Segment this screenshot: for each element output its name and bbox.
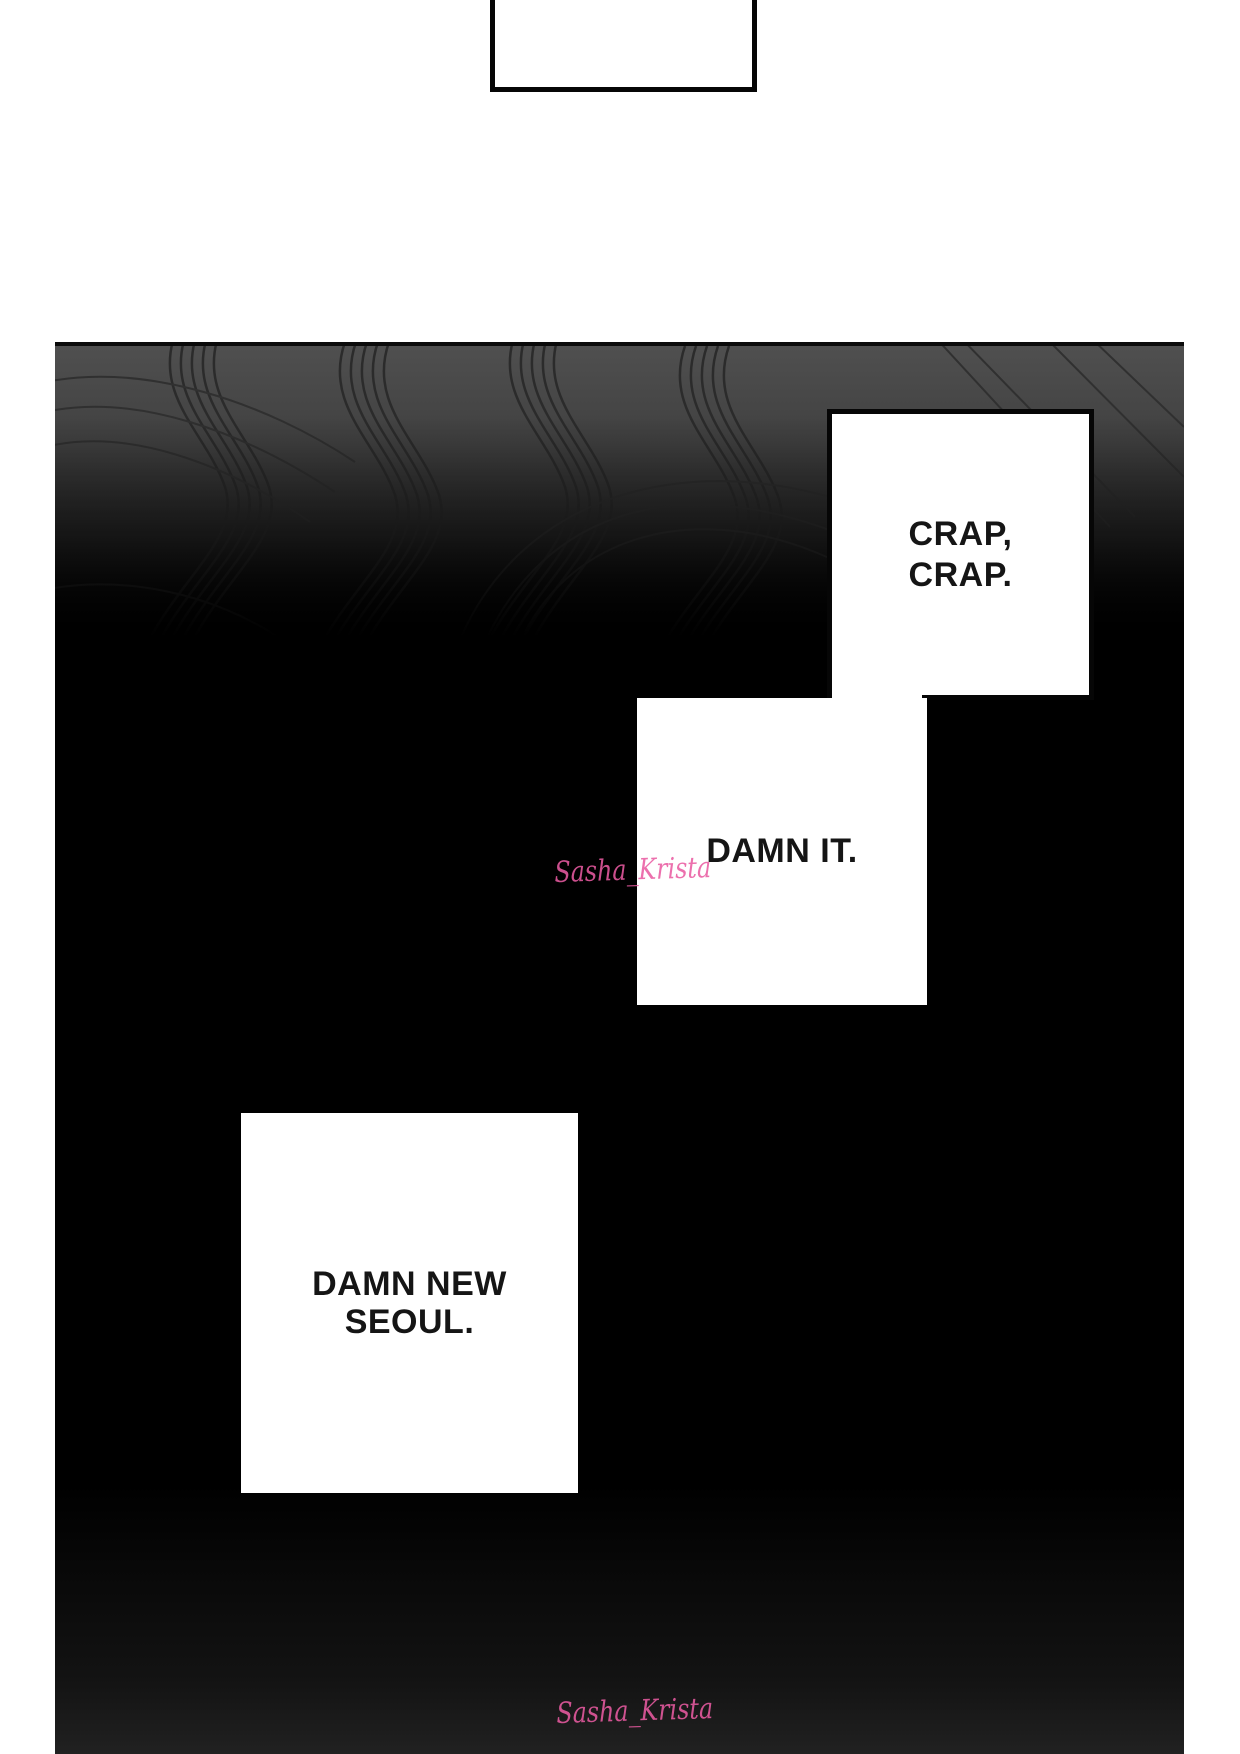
speech-bubble-top-partial <box>490 0 757 92</box>
speech-text-crap: CRAP,CRAP. <box>909 514 1013 596</box>
watermark-sasha-krista-upper: Sasha_Krista <box>554 850 711 889</box>
speech-line: CRAP, <box>909 515 1013 553</box>
speech-line: CRAP. <box>909 556 1013 594</box>
comic-page: CRAP,CRAP. DAMN IT. DAMN NEWSEOUL. Sasha… <box>0 0 1240 1754</box>
watermark-sasha-krista-lower: Sasha_Krista <box>556 1691 713 1730</box>
speech-text-damn-it: DAMN IT. <box>706 831 857 872</box>
bubble-join-seam <box>832 690 922 706</box>
speech-line: DAMN NEW <box>312 1265 507 1303</box>
speech-bubble-new-seoul: DAMN NEWSEOUL. <box>241 1113 578 1493</box>
speech-text-new-seoul: DAMN NEWSEOUL. <box>312 1265 507 1341</box>
speech-bubble-crap: CRAP,CRAP. <box>827 409 1094 700</box>
speech-line: SEOUL. <box>345 1303 475 1341</box>
